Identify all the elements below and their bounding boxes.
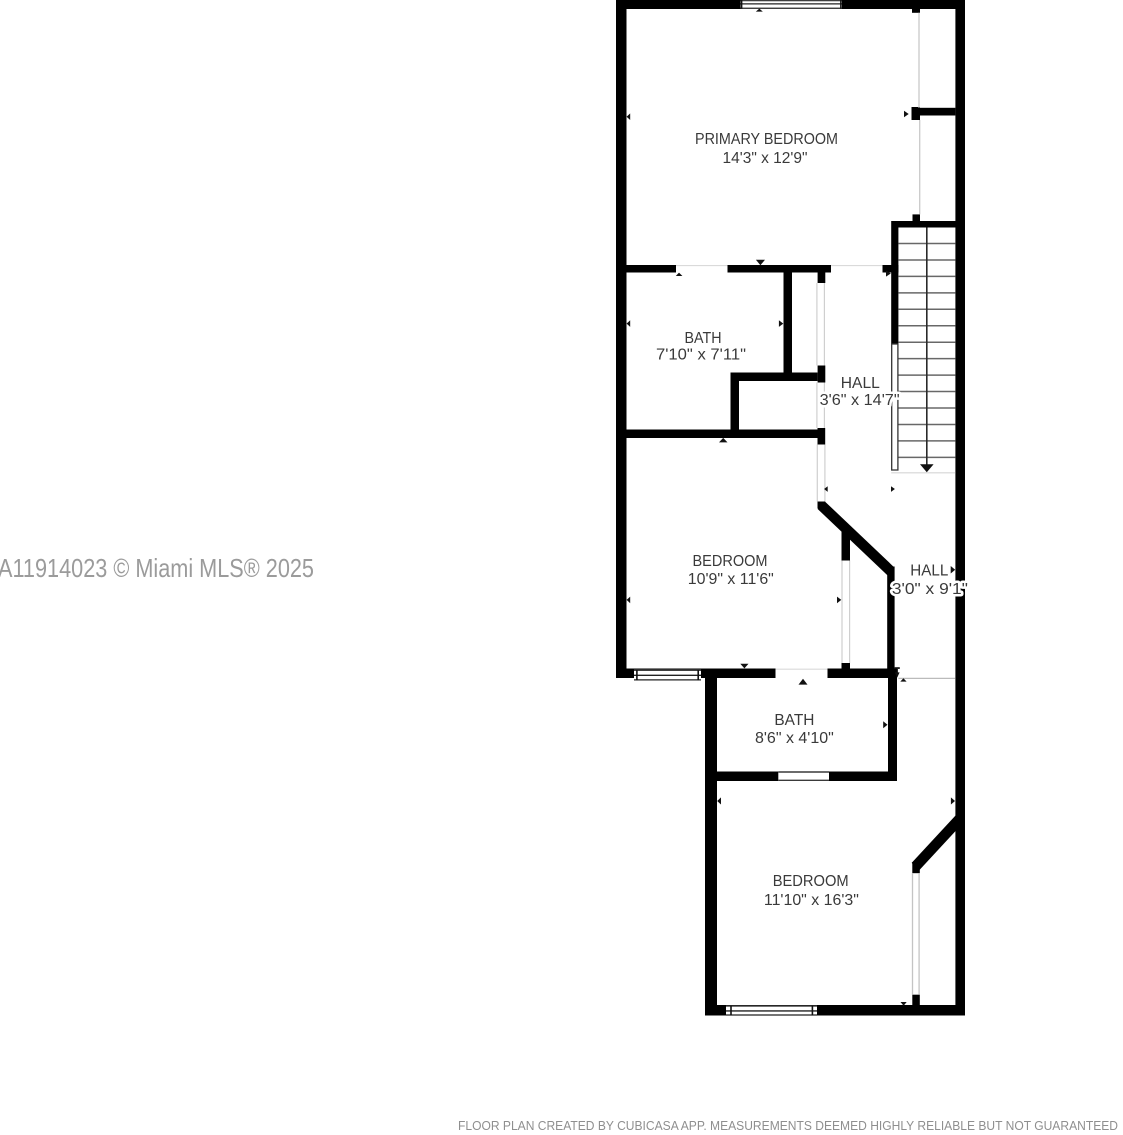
svg-text:PRIMARY BEDROOM: PRIMARY BEDROOM bbox=[695, 131, 838, 148]
svg-text:14'3" x 12'9": 14'3" x 12'9" bbox=[723, 150, 808, 167]
svg-text:HALL: HALL bbox=[910, 563, 948, 580]
svg-text:BATH: BATH bbox=[774, 712, 814, 729]
svg-text:BATH: BATH bbox=[685, 330, 722, 347]
svg-text:11'10" x 16'3": 11'10" x 16'3" bbox=[764, 892, 859, 909]
svg-text:BEDROOM: BEDROOM bbox=[693, 553, 768, 570]
svg-text:A11914023 © Miami MLS® 2025: A11914023 © Miami MLS® 2025 bbox=[0, 553, 314, 583]
svg-text:3'6" x 14'7": 3'6" x 14'7" bbox=[820, 392, 900, 409]
svg-text:8'6" x 4'10": 8'6" x 4'10" bbox=[755, 730, 834, 747]
svg-text:10'9" x 11'6": 10'9" x 11'6" bbox=[688, 571, 774, 588]
svg-text:HALL: HALL bbox=[841, 375, 880, 392]
svg-text:7'10" x 7'11": 7'10" x 7'11" bbox=[656, 347, 746, 364]
svg-text:3'0" x 9'1": 3'0" x 9'1" bbox=[892, 581, 968, 598]
svg-text:FLOOR PLAN CREATED BY CUBICASA: FLOOR PLAN CREATED BY CUBICASA APP. MEAS… bbox=[458, 1118, 1118, 1130]
svg-text:BEDROOM: BEDROOM bbox=[773, 873, 849, 890]
